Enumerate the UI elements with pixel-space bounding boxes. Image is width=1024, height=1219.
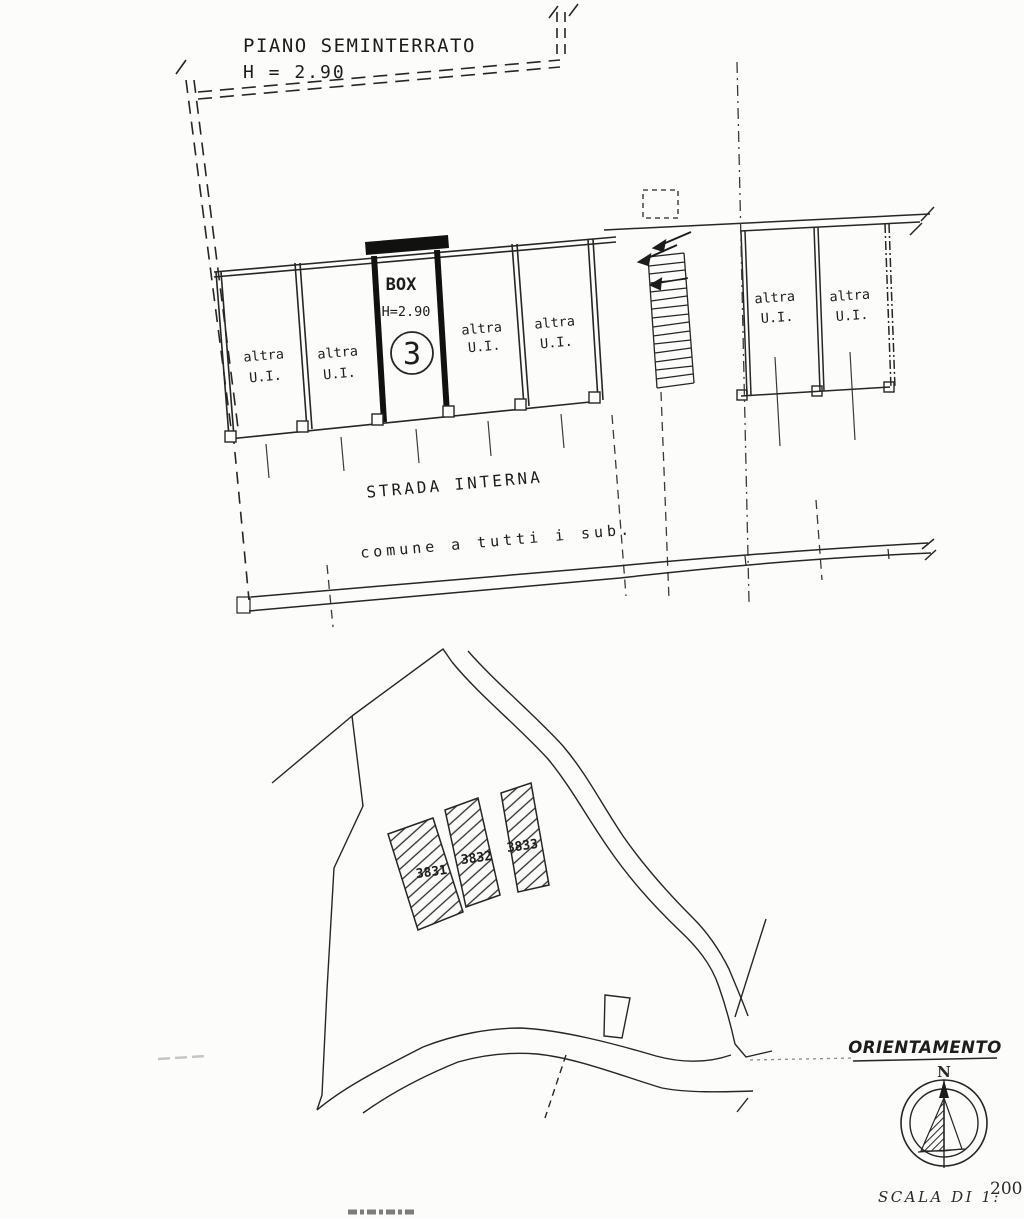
stall-label: altra	[461, 319, 503, 338]
scale-label: SCALA DI 1:	[878, 1188, 1001, 1206]
site-lower-road-upper	[317, 1028, 731, 1110]
compass-rose-icon	[901, 1080, 987, 1168]
plan-height-note: H = 2.90	[243, 62, 346, 83]
upper-floor-plan: PIANO SEMINTERRATO H = 2.90 altraU.I. al…	[176, 4, 936, 627]
common-note: comune a tutti i sub.	[359, 520, 633, 562]
site-road-outer	[452, 662, 735, 1044]
stall-label: altra	[829, 287, 871, 306]
parcel-3833-shape	[501, 783, 549, 892]
stall-label: U.I.	[760, 309, 794, 327]
stall-label: altra	[754, 289, 796, 308]
stall-label: U.I.	[323, 365, 357, 384]
scan-artifacts	[158, 1056, 415, 1212]
stall-label: altra	[534, 313, 576, 332]
plan-title: PIANO SEMINTERRATO	[243, 35, 476, 57]
corner-tick-icon	[569, 4, 578, 16]
pillars	[225, 382, 894, 442]
compass-title: ORIENTAMENTO	[848, 1038, 1001, 1057]
hatched-parcels: 3831 3832 3833	[388, 783, 549, 930]
stall-label: altra	[243, 346, 285, 365]
box-stall: BOX H=2.90 3	[382, 275, 433, 374]
stall-label: altra	[317, 343, 359, 362]
compass: ORIENTAMENTO N	[848, 1038, 1001, 1168]
drawing-canvas: PIANO SEMINTERRATO H = 2.90 altraU.I. al…	[0, 0, 1024, 1219]
line-end-tick-icon	[922, 539, 934, 549]
stall-label: U.I.	[467, 337, 501, 356]
stall-label: U.I.	[835, 307, 869, 325]
road-label: STRADA INTERNA	[366, 467, 544, 501]
internal-road	[237, 539, 936, 613]
box-number: 3	[403, 337, 421, 372]
corner-tick-icon	[176, 60, 186, 74]
stall-label: U.I.	[249, 368, 283, 387]
stairwell-dashed-landing	[643, 190, 678, 218]
scale-note: SCALA DI 1: 200	[878, 1179, 1022, 1206]
box-height-note: H=2.90	[382, 304, 431, 320]
line-end-tick-icon	[910, 223, 922, 235]
compass-title-underline	[853, 1058, 997, 1061]
small-building-shape	[604, 995, 630, 1038]
scale-value: 200	[990, 1179, 1022, 1199]
north-label: N	[937, 1063, 951, 1081]
stall-label: U.I.	[540, 334, 574, 353]
stall-labels: altraU.I. altraU.I. altraU.I. altraU.I. …	[243, 287, 872, 387]
site-plan: 3831 3832 3833	[272, 649, 855, 1118]
leader-line	[750, 1058, 855, 1060]
scanned-cadastral-plan: PIANO SEMINTERRATO H = 2.90 altraU.I. al…	[0, 0, 1024, 1219]
stairwell	[639, 190, 694, 388]
stair-direction-arrow-icon	[639, 232, 691, 289]
line-end-tick-icon	[925, 550, 936, 560]
box-title: BOX	[386, 275, 417, 295]
site-lower-road-lower	[363, 1053, 753, 1113]
